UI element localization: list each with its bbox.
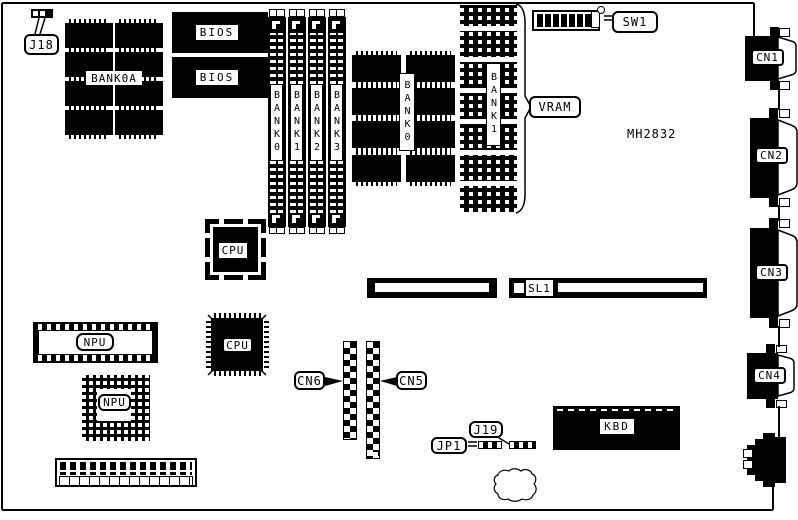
sw1-pointer-line	[604, 16, 612, 20]
sl1-label: SL1	[526, 280, 553, 296]
simm-label: BANK1	[290, 84, 303, 161]
npu-label: NPU	[76, 333, 114, 351]
din-connector-pad	[743, 460, 753, 469]
kbd-label: KBD	[600, 419, 634, 434]
j19-pointer-line	[499, 438, 509, 444]
cn3-label: CN3	[755, 264, 788, 281]
motherboard-diagram: J18 BANK0A BIOS BIOS BANK0 BANK1 BA	[0, 0, 798, 520]
cn6-callout: CN6	[294, 371, 325, 390]
bios-label: BIOS	[196, 70, 238, 85]
simm-label: BANK0	[270, 84, 283, 161]
cn1-label: CN1	[751, 49, 784, 66]
cpu-label: CPU	[222, 337, 253, 353]
j18-callout: J18	[24, 34, 59, 55]
jp1-pointer-line	[468, 442, 477, 446]
cn5-pointer-arrow	[380, 377, 397, 386]
simm-label: BANK3	[330, 84, 343, 161]
dram-bank-label: BANK0	[399, 73, 415, 151]
cn2-label: CN2	[755, 147, 788, 164]
vram-bank-label: BANK1	[486, 63, 501, 146]
bios-label: BIOS	[196, 25, 238, 40]
component-blob-outline	[494, 469, 536, 502]
j19-callout: J19	[469, 421, 503, 438]
cpu-label: CPU	[219, 243, 247, 258]
jp1-callout: JP1	[431, 437, 467, 454]
cn5-callout: CN5	[396, 371, 427, 390]
bank0a-label: BANK0A	[86, 71, 142, 85]
sw1-callout: SW1	[612, 11, 658, 33]
cn6-pointer-arrow	[325, 377, 343, 386]
npu-label: NPU	[98, 394, 131, 411]
simm-label: BANK2	[310, 84, 323, 161]
j18-pointer-line	[35, 18, 45, 34]
vram-callout: VRAM	[529, 96, 581, 118]
cn4-label: CN4	[753, 367, 786, 384]
din-connector-pad	[743, 449, 753, 458]
